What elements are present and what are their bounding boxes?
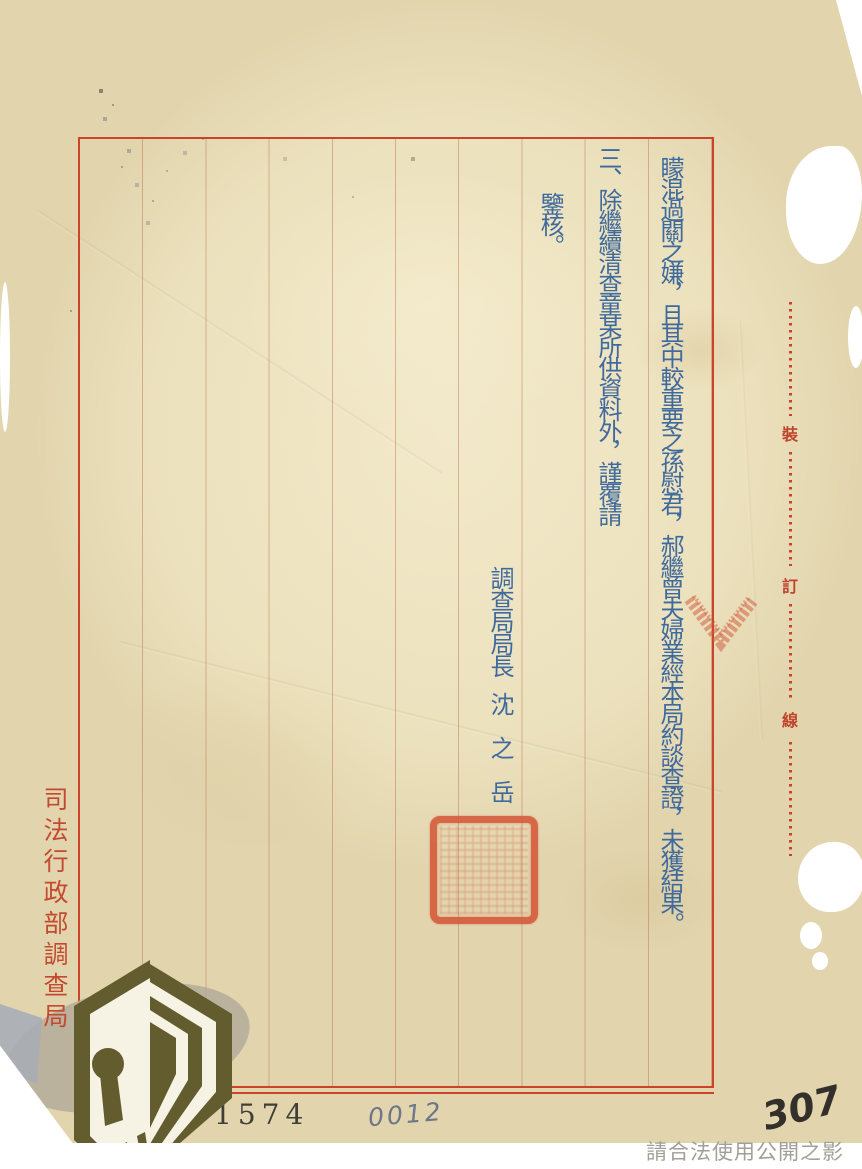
body-column-3: 鑒核。 <box>533 192 568 255</box>
body-column-2: 三、除繼續清查童某所供資料外，謹覆請 <box>591 146 626 524</box>
usage-watermark: 請合法使用公開之影像 <box>646 1136 862 1169</box>
paper-hole <box>812 952 828 970</box>
official-seal-stamp <box>430 816 538 924</box>
binding-dotted-line <box>789 452 792 566</box>
approval-check-stamp <box>683 593 757 659</box>
seal-inner-texture <box>440 826 528 914</box>
agency-margin-label: 司法行政部調查局 <box>36 786 72 1034</box>
pencil-speckles <box>0 0 2 2</box>
binding-char-ding: 訂 <box>782 573 798 597</box>
signature-block: 調查局局長沈 之 岳 <box>483 566 518 802</box>
paper-tear <box>848 306 862 368</box>
binding-char-zhuang: 裝 <box>782 421 798 445</box>
body-column-1: 矇混過關之嫌，且其中較重要之孫慰君，郝繼曾夫婦業經本局約談查證，未獲結果。 <box>653 156 688 933</box>
signature-name: 沈 之 岳 <box>486 692 514 802</box>
binding-char-xian: 線 <box>782 707 798 731</box>
paper-hole <box>800 922 822 949</box>
signature-title: 調查局局長 <box>486 566 514 676</box>
paper-tear <box>798 842 862 912</box>
paper-tear <box>0 282 10 432</box>
scanned-document-page: 矇混過關之嫌，且其中較重要之孫慰君，郝繼曾夫婦業經本局約談查證，未獲結果。 三、… <box>0 0 862 1169</box>
binding-dotted-line <box>789 604 792 702</box>
binding-dotted-line <box>789 742 792 856</box>
binding-dotted-line <box>789 302 792 416</box>
